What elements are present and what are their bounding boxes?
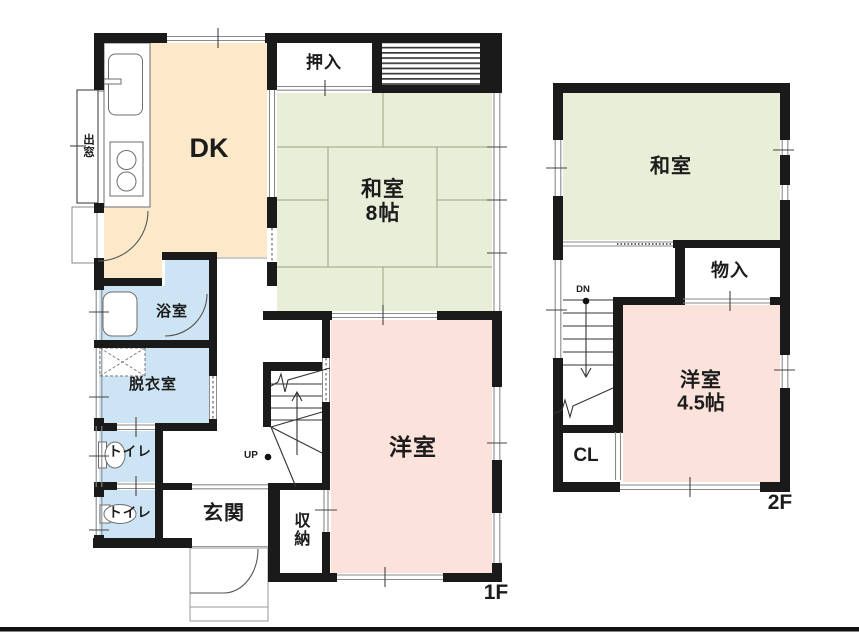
room-fills [99, 43, 780, 573]
room-label-monoire: 物入 [711, 262, 749, 281]
room-label-toilet-lower: トイレ [108, 506, 152, 520]
floorplan: DK 和室 8帖 押入 浴室 脱衣室 トイレ トイレ 玄関 収納 洋室 出窓 U… [0, 0, 859, 633]
kitchen-counter [97, 43, 150, 207]
room-label-washitsu-2f: 和室 [650, 157, 692, 178]
room-label-youshitsu-1f: 洋室 [389, 435, 437, 459]
slatted-storage-area [382, 43, 480, 85]
room-label-yokushitsu: 浴室 [156, 304, 188, 320]
bottom-border [0, 627, 859, 632]
room-label-datsuishitsu: 脱衣室 [129, 377, 177, 393]
floor-label-1f: 1F [484, 582, 509, 604]
room-label-shunou: 収納 [291, 512, 308, 548]
label-stairs-up: UP [244, 451, 258, 462]
room-label-washitsu-1f: 和室 [361, 179, 405, 201]
washing-machine [100, 348, 145, 376]
floor-label-2f: 2F [768, 492, 793, 514]
room-label-oshiire: 押入 [306, 54, 342, 72]
room-label-youshitsu-2f: 洋室 [680, 371, 722, 392]
room-label-toilet-upper: トイレ [108, 445, 152, 459]
room-label-genkan: 玄関 [203, 504, 245, 525]
label-stairs-down: DN [576, 285, 590, 295]
room-label-closet: CL [573, 446, 598, 466]
entrance-porch [190, 547, 268, 622]
room-label-washitsu-1f-size: 8帖 [366, 203, 401, 225]
entrance-door-arc [190, 549, 258, 593]
label-bay-window: 出窓 [82, 134, 94, 159]
floorplan-canvas [0, 0, 859, 633]
kitchen-door-landing [72, 207, 97, 263]
room-label-youshitsu-2f-size: 4.5帖 [677, 394, 725, 415]
stairs-1f [265, 368, 330, 487]
bathtub [103, 292, 137, 336]
room-label-dk: DK [190, 134, 229, 162]
